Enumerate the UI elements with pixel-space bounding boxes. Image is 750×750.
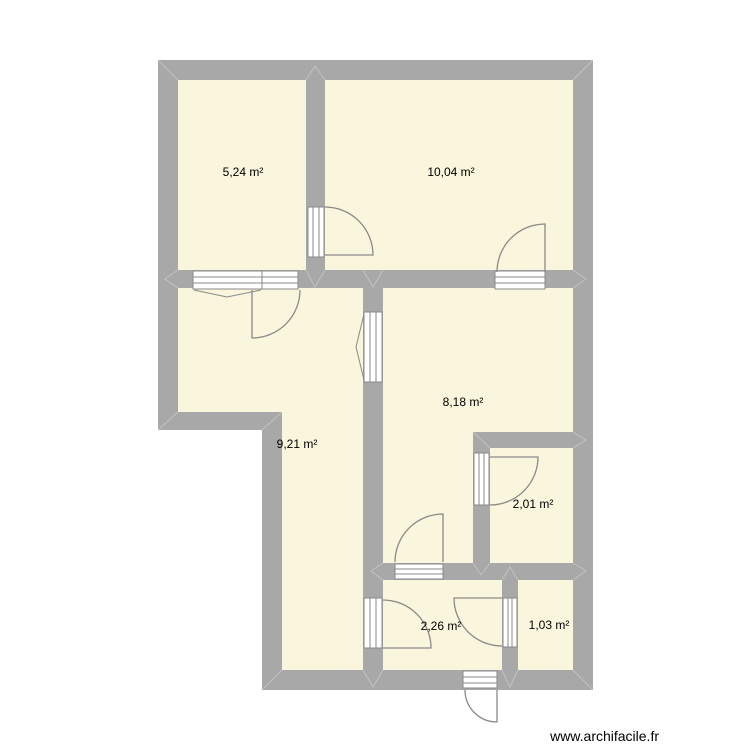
- wall-exterior-top[interactable]: [158, 60, 593, 80]
- room-label-103: 1,03 m²: [529, 618, 570, 632]
- door-entrance-swing[interactable]: [465, 690, 497, 722]
- room-label-201: 2,01 m²: [513, 497, 554, 511]
- door-818-201[interactable]: [474, 453, 489, 505]
- door-524-921[interactable]: [262, 271, 298, 289]
- door-818-226[interactable]: [395, 564, 443, 579]
- door-entrance[interactable]: [463, 671, 497, 688]
- room-label-1004: 10,04 m²: [427, 165, 474, 179]
- door-panel: [503, 598, 517, 647]
- room-label-818: 8,18 m²: [443, 395, 484, 409]
- wall-exterior-step[interactable]: [158, 412, 282, 430]
- door-panel: [495, 271, 545, 289]
- wall-exterior-left-upper[interactable]: [158, 60, 178, 430]
- door-524-1004[interactable]: [308, 207, 324, 257]
- door-226-103[interactable]: [503, 598, 517, 647]
- wall-exterior-right[interactable]: [573, 60, 593, 690]
- window-frame: [193, 271, 262, 289]
- door-921-226[interactable]: [364, 598, 382, 648]
- window-frame: [364, 312, 382, 382]
- door-panel: [308, 207, 324, 257]
- floorplan-page: 5,24 m² 10,04 m² 9,21 m² 8,18 m² 2,01 m²…: [0, 0, 750, 750]
- room-label-226: 2,26 m²: [421, 619, 462, 633]
- room-label-524: 5,24 m²: [223, 165, 264, 179]
- door-1004-818[interactable]: [495, 271, 545, 289]
- door-panel: [474, 453, 489, 505]
- room-label-921: 9,21 m²: [277, 437, 318, 451]
- door-panel: [364, 598, 382, 648]
- door-panel: [463, 671, 497, 688]
- door-panel: [395, 564, 443, 579]
- door-panel: [262, 271, 298, 289]
- floorplan-canvas: 5,24 m² 10,04 m² 9,21 m² 8,18 m² 2,01 m²…: [0, 0, 750, 750]
- wall-exterior-bottom[interactable]: [262, 670, 593, 690]
- watermark: www.archifacile.fr: [549, 728, 659, 744]
- wall-exterior-left-lower[interactable]: [262, 430, 282, 670]
